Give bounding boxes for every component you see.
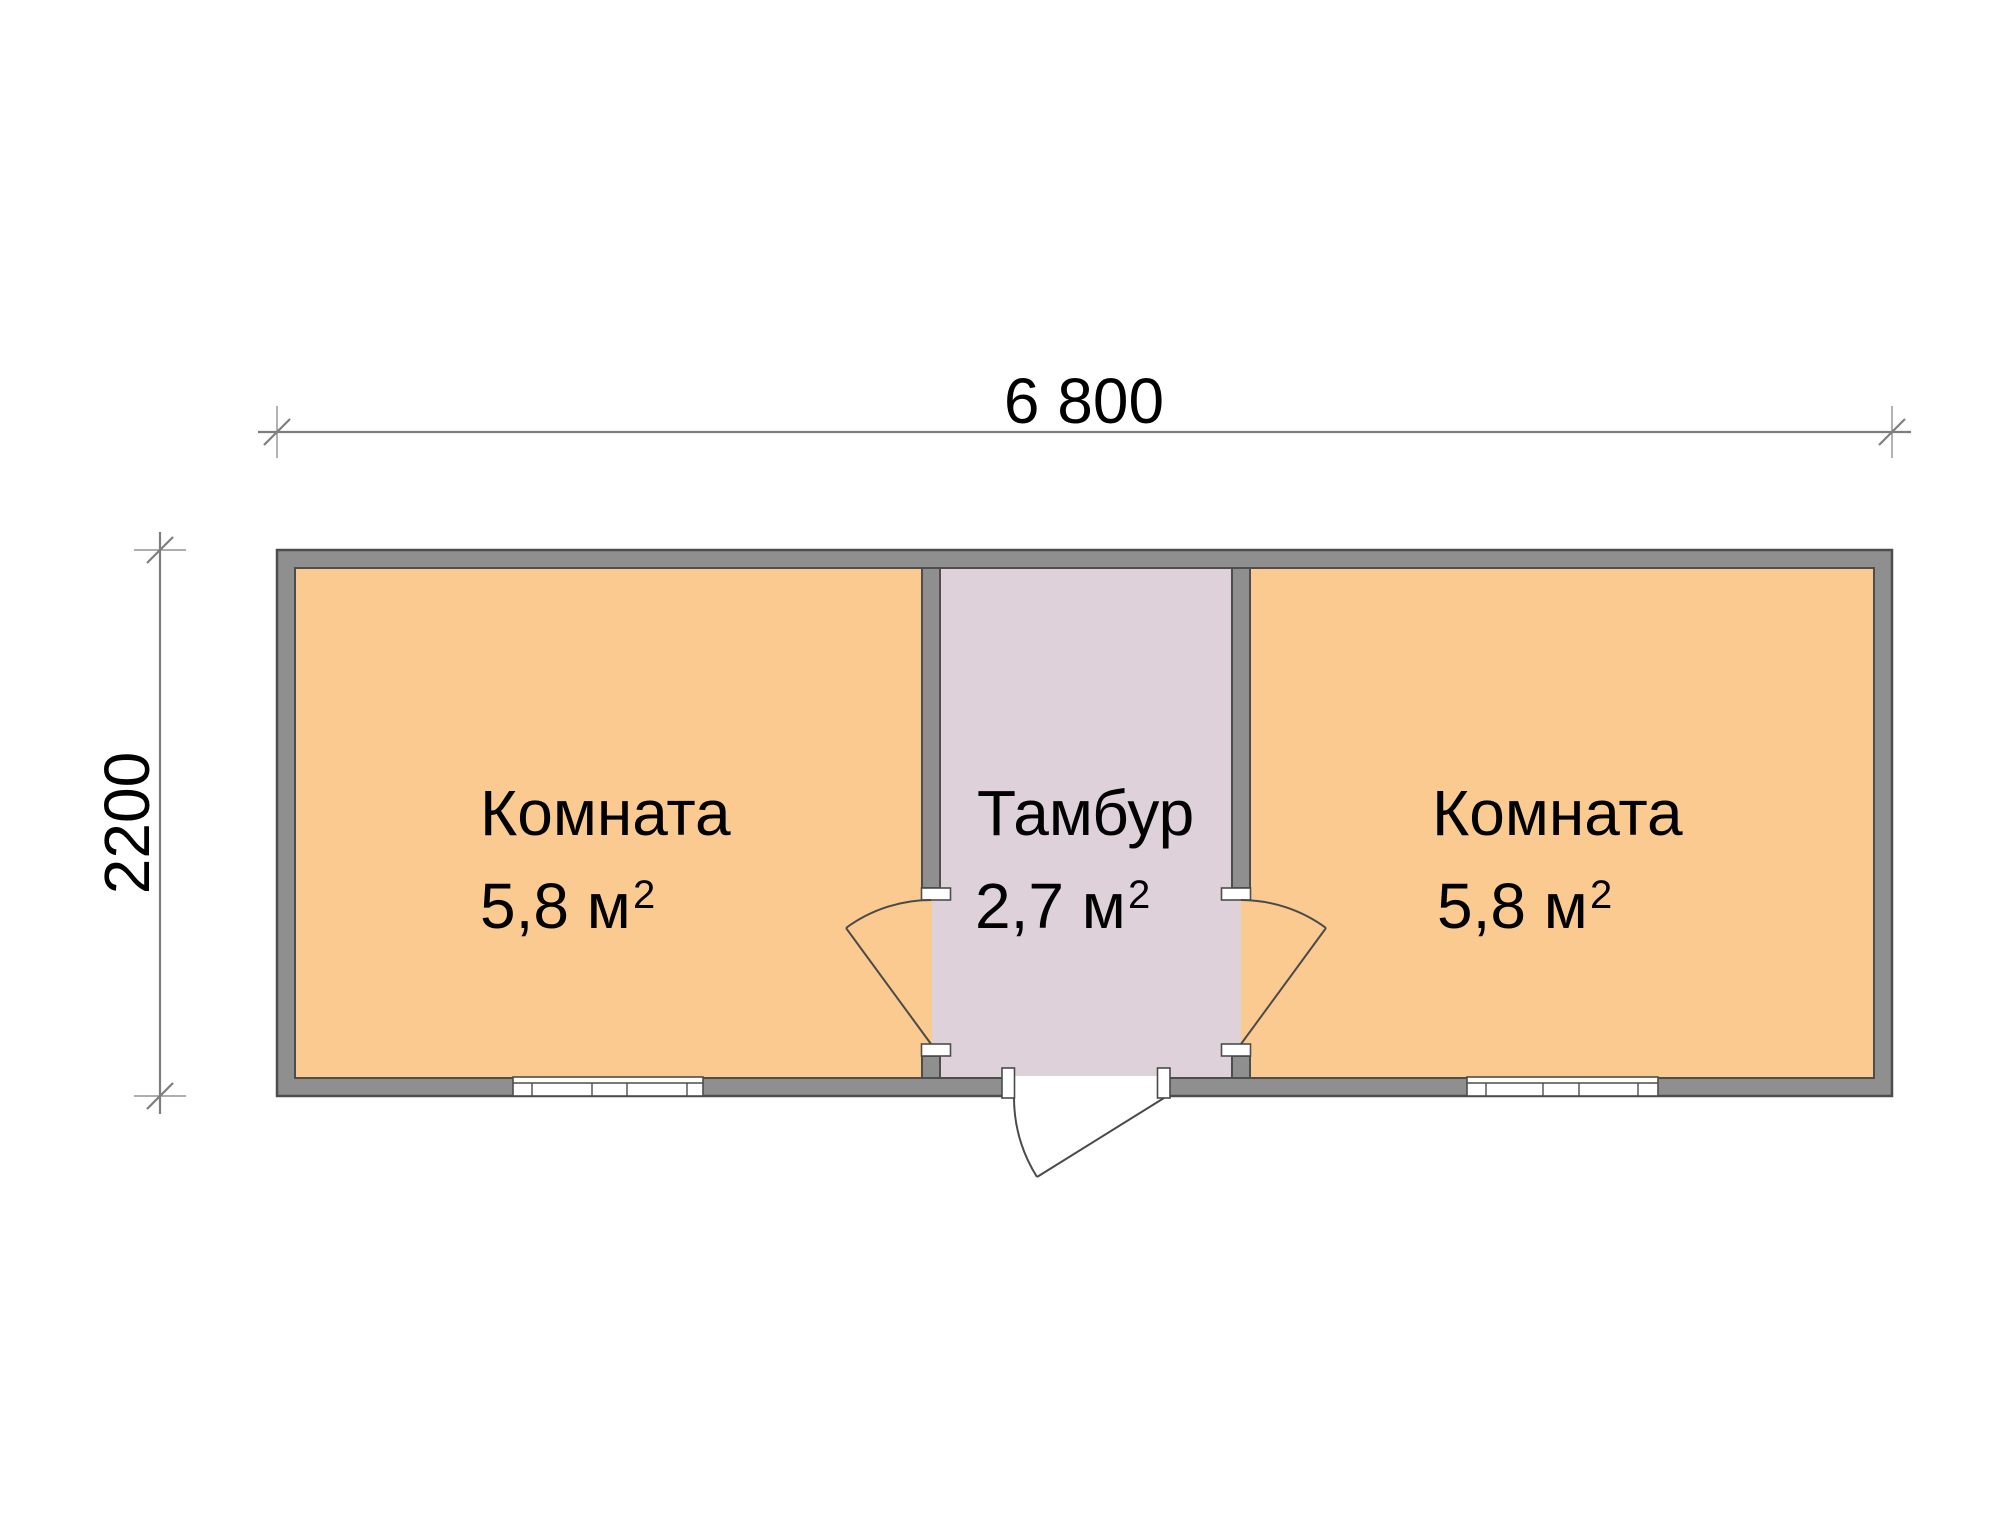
room-left-area-label: 5,8 м xyxy=(480,870,631,942)
vestibule-name-label: Тамбур xyxy=(977,777,1194,849)
vestibule-area-label: 2,7 м xyxy=(975,870,1126,942)
dimension-width-label: 6 800 xyxy=(1004,365,1164,437)
room-right-area-label: 5,8 м xyxy=(1437,870,1588,942)
room-left-name-label: Комната xyxy=(480,777,731,849)
dimension-height-label: 2200 xyxy=(91,752,163,894)
partition-right-top-jamb xyxy=(1222,888,1251,900)
floor-plan-page: 6 800 2200 xyxy=(0,0,2000,1539)
room-right-name-label: Комната xyxy=(1432,777,1683,849)
doorway-right-floor-room-side xyxy=(1241,899,1251,1045)
partition-right-bottom-jamb xyxy=(1222,1044,1251,1056)
partition-left-upper xyxy=(922,568,940,888)
doorway-left-floor-vestibule-side xyxy=(932,899,941,1045)
room-right-area-superscript: 2 xyxy=(1590,873,1612,917)
partition-left-top-jamb xyxy=(922,888,951,900)
floor-plan-drawing: 6 800 2200 xyxy=(0,0,2000,1539)
partition-left-bottom-jamb xyxy=(922,1044,951,1056)
entrance-jamb-left xyxy=(1002,1068,1015,1098)
vestibule-area-superscript: 2 xyxy=(1128,873,1150,917)
partition-right-upper xyxy=(1232,568,1250,888)
window-left xyxy=(513,1077,703,1096)
partition-right-stub xyxy=(1232,1056,1250,1078)
room-left-area-superscript: 2 xyxy=(633,873,655,917)
window-left-frame xyxy=(513,1077,703,1096)
partition-left-stub xyxy=(922,1056,940,1078)
window-right xyxy=(1467,1077,1658,1096)
entrance-jamb-right xyxy=(1158,1068,1171,1098)
window-right-frame xyxy=(1467,1077,1658,1096)
entrance-opening xyxy=(1014,1076,1158,1102)
doorway-left-floor-room-side xyxy=(921,899,932,1045)
doorway-right-floor-vestibule-side xyxy=(1231,899,1241,1045)
